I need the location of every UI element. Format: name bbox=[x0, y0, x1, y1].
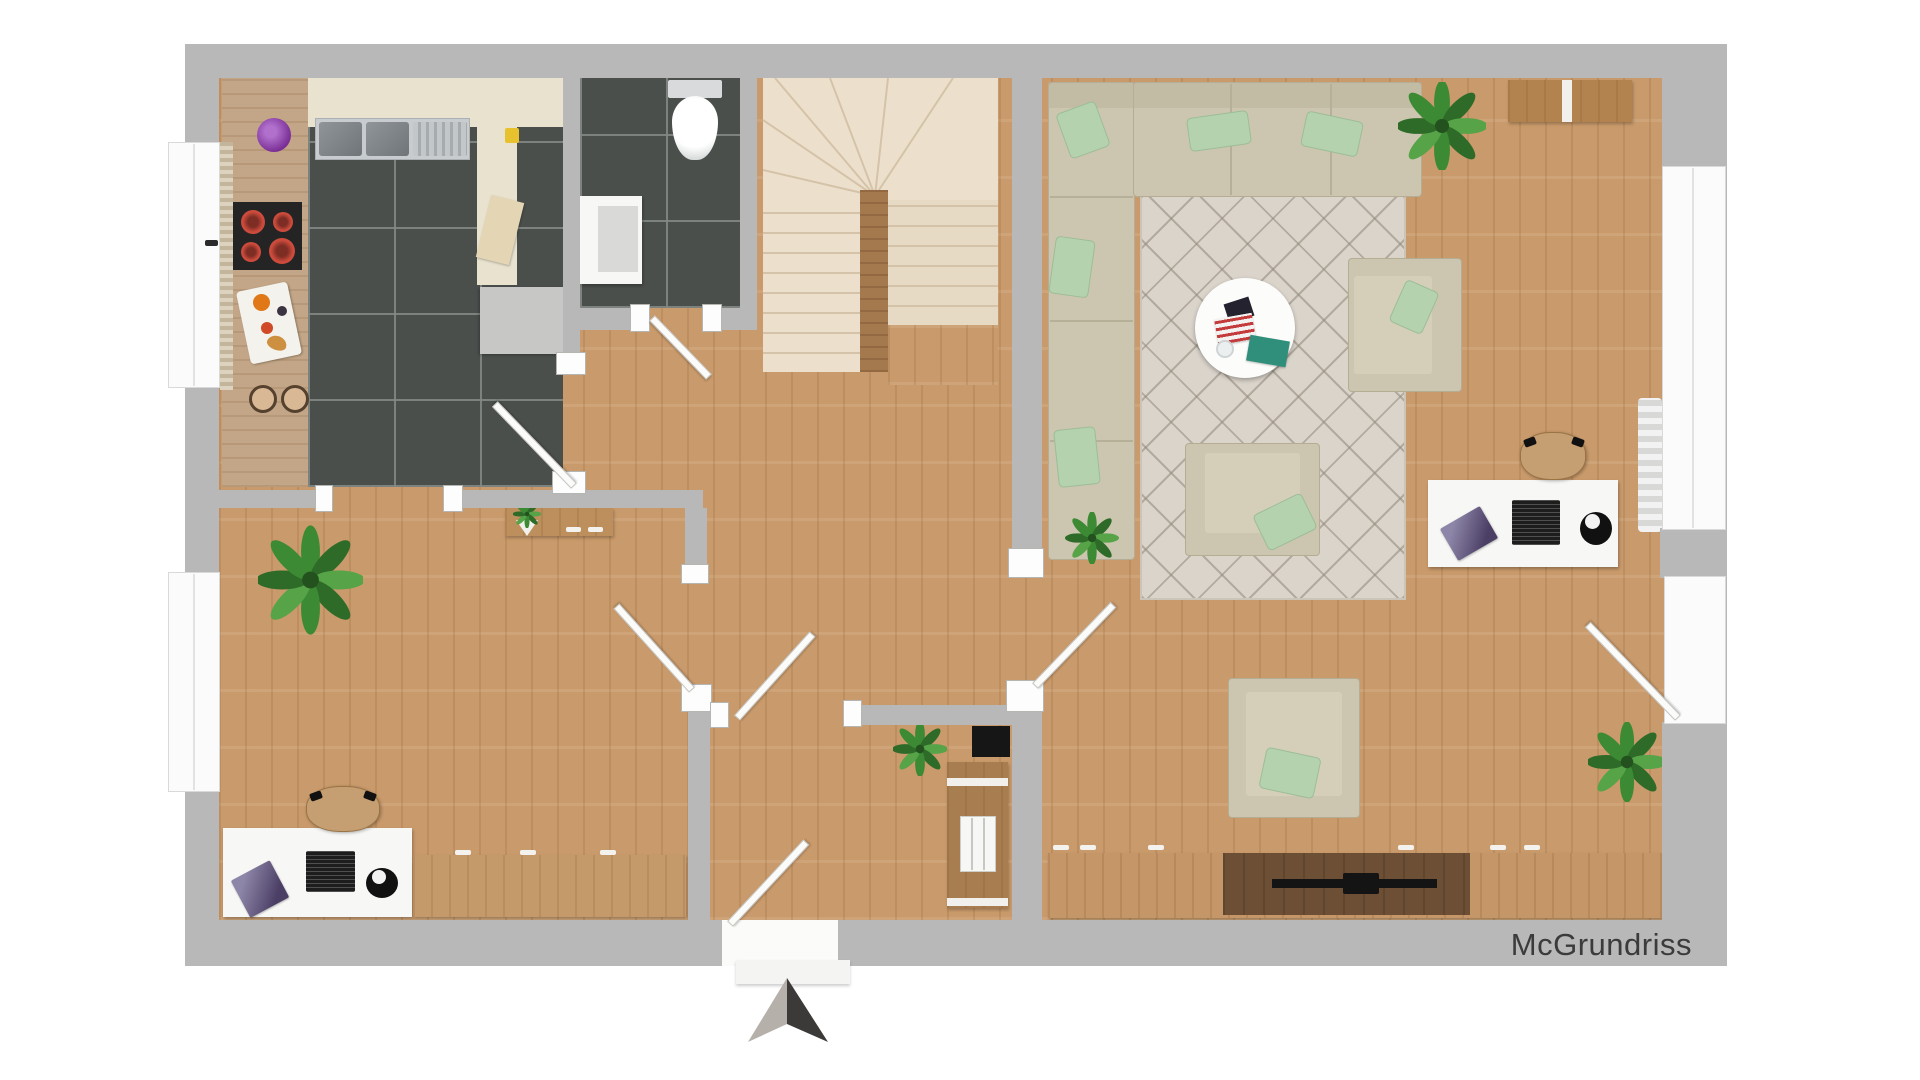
office-sideboard bbox=[413, 855, 686, 917]
doormat bbox=[972, 726, 1010, 757]
sideboard-handle bbox=[600, 850, 616, 855]
lowboard-handle bbox=[1398, 845, 1414, 850]
soundbar-center bbox=[1343, 873, 1379, 894]
right-wall-inner-pad bbox=[1662, 44, 1693, 166]
stair-center-post bbox=[860, 190, 888, 372]
stair-treads-right bbox=[888, 200, 998, 325]
right-wall-inner-pad bbox=[1662, 722, 1693, 920]
console-handle bbox=[566, 527, 581, 532]
food-dark bbox=[277, 306, 287, 316]
food-red bbox=[261, 322, 273, 334]
living-laptop bbox=[1512, 500, 1560, 545]
lowboard-handle bbox=[1080, 845, 1096, 850]
watermark: McGrundriss bbox=[1450, 927, 1692, 963]
kitchen-blind-strip bbox=[220, 142, 233, 390]
wardrobe-shelf bbox=[960, 816, 996, 872]
sideboard-handle bbox=[520, 850, 536, 855]
right-wall-inner-pad bbox=[1660, 528, 1693, 578]
top-sideboard-gap bbox=[1562, 80, 1572, 122]
wardrobe-bottom-panel bbox=[947, 898, 1008, 906]
office-plant-icon bbox=[258, 515, 363, 645]
north-arrow-icon bbox=[742, 976, 832, 1046]
kitchen-cabinet bbox=[480, 287, 563, 354]
wall bbox=[1012, 78, 1042, 552]
sink-basin-right bbox=[366, 122, 409, 156]
sink-basin-left bbox=[319, 122, 362, 156]
door-jamb bbox=[843, 700, 862, 727]
wall bbox=[1012, 710, 1042, 920]
wall bbox=[563, 308, 632, 330]
lowboard-handle bbox=[1053, 845, 1069, 850]
door-jamb bbox=[315, 485, 333, 512]
door-jamb bbox=[556, 352, 586, 375]
office-laptop bbox=[306, 851, 355, 892]
stair-winders bbox=[763, 78, 998, 200]
terrace-door-frame bbox=[1664, 576, 1726, 724]
sofa-seam bbox=[1050, 320, 1133, 322]
vanity-basin bbox=[598, 206, 638, 272]
burner bbox=[241, 210, 265, 234]
living-plant-icon bbox=[1398, 82, 1486, 170]
stool bbox=[281, 385, 309, 413]
door-jamb bbox=[710, 702, 729, 728]
living-window bbox=[1662, 166, 1726, 530]
burner bbox=[269, 238, 295, 264]
door-jamb bbox=[1008, 548, 1044, 578]
stool bbox=[249, 385, 277, 413]
floor-plan-canvas: McGrundriss bbox=[0, 0, 1920, 1080]
wardrobe-top-panel bbox=[947, 778, 1008, 786]
wall bbox=[685, 508, 707, 570]
window-handle-icon bbox=[205, 240, 218, 246]
kitchen-window-frame-line bbox=[193, 144, 195, 386]
burner bbox=[241, 242, 261, 262]
corner-plant-icon bbox=[1588, 722, 1666, 802]
living-lamp-bulb bbox=[1585, 514, 1600, 529]
office-window-frame-line bbox=[193, 574, 195, 790]
door-jamb bbox=[443, 485, 463, 512]
door-jamb bbox=[702, 304, 722, 332]
sofa-backrest bbox=[1048, 82, 1422, 108]
lowboard-handle bbox=[1490, 845, 1506, 850]
wall bbox=[688, 710, 710, 920]
food-orange bbox=[253, 294, 270, 311]
wall bbox=[219, 490, 315, 508]
curtain bbox=[1638, 398, 1662, 532]
sofa-pillow bbox=[1048, 235, 1096, 298]
cooktop bbox=[233, 202, 302, 270]
purple-plant bbox=[257, 118, 291, 152]
office-lamp-bulb bbox=[372, 870, 386, 884]
sideboard-handle bbox=[455, 850, 471, 855]
wall bbox=[740, 78, 757, 308]
sponge bbox=[505, 128, 519, 143]
wardrobe-shelf-divider bbox=[983, 818, 985, 870]
wall bbox=[860, 705, 1012, 725]
sofa-seam bbox=[1050, 196, 1133, 198]
door-plant-icon bbox=[1060, 512, 1124, 564]
wardrobe-shelf-divider bbox=[971, 818, 973, 870]
coffee-table-glass bbox=[1216, 340, 1234, 358]
sofa-pillow bbox=[1053, 426, 1101, 488]
door-jamb bbox=[681, 564, 709, 584]
burner bbox=[273, 212, 293, 232]
lowboard-handle bbox=[1524, 845, 1540, 850]
sink-drainer bbox=[413, 122, 467, 156]
stair-treads-left bbox=[763, 200, 860, 372]
outer-wall-top bbox=[185, 44, 1727, 78]
console-handle bbox=[588, 527, 603, 532]
stair-landing bbox=[888, 325, 998, 385]
living-window-frame-line bbox=[1692, 168, 1694, 528]
lowboard-handle bbox=[1148, 845, 1164, 850]
door-jamb bbox=[630, 304, 650, 332]
vestibule-plant-icon bbox=[893, 722, 947, 776]
